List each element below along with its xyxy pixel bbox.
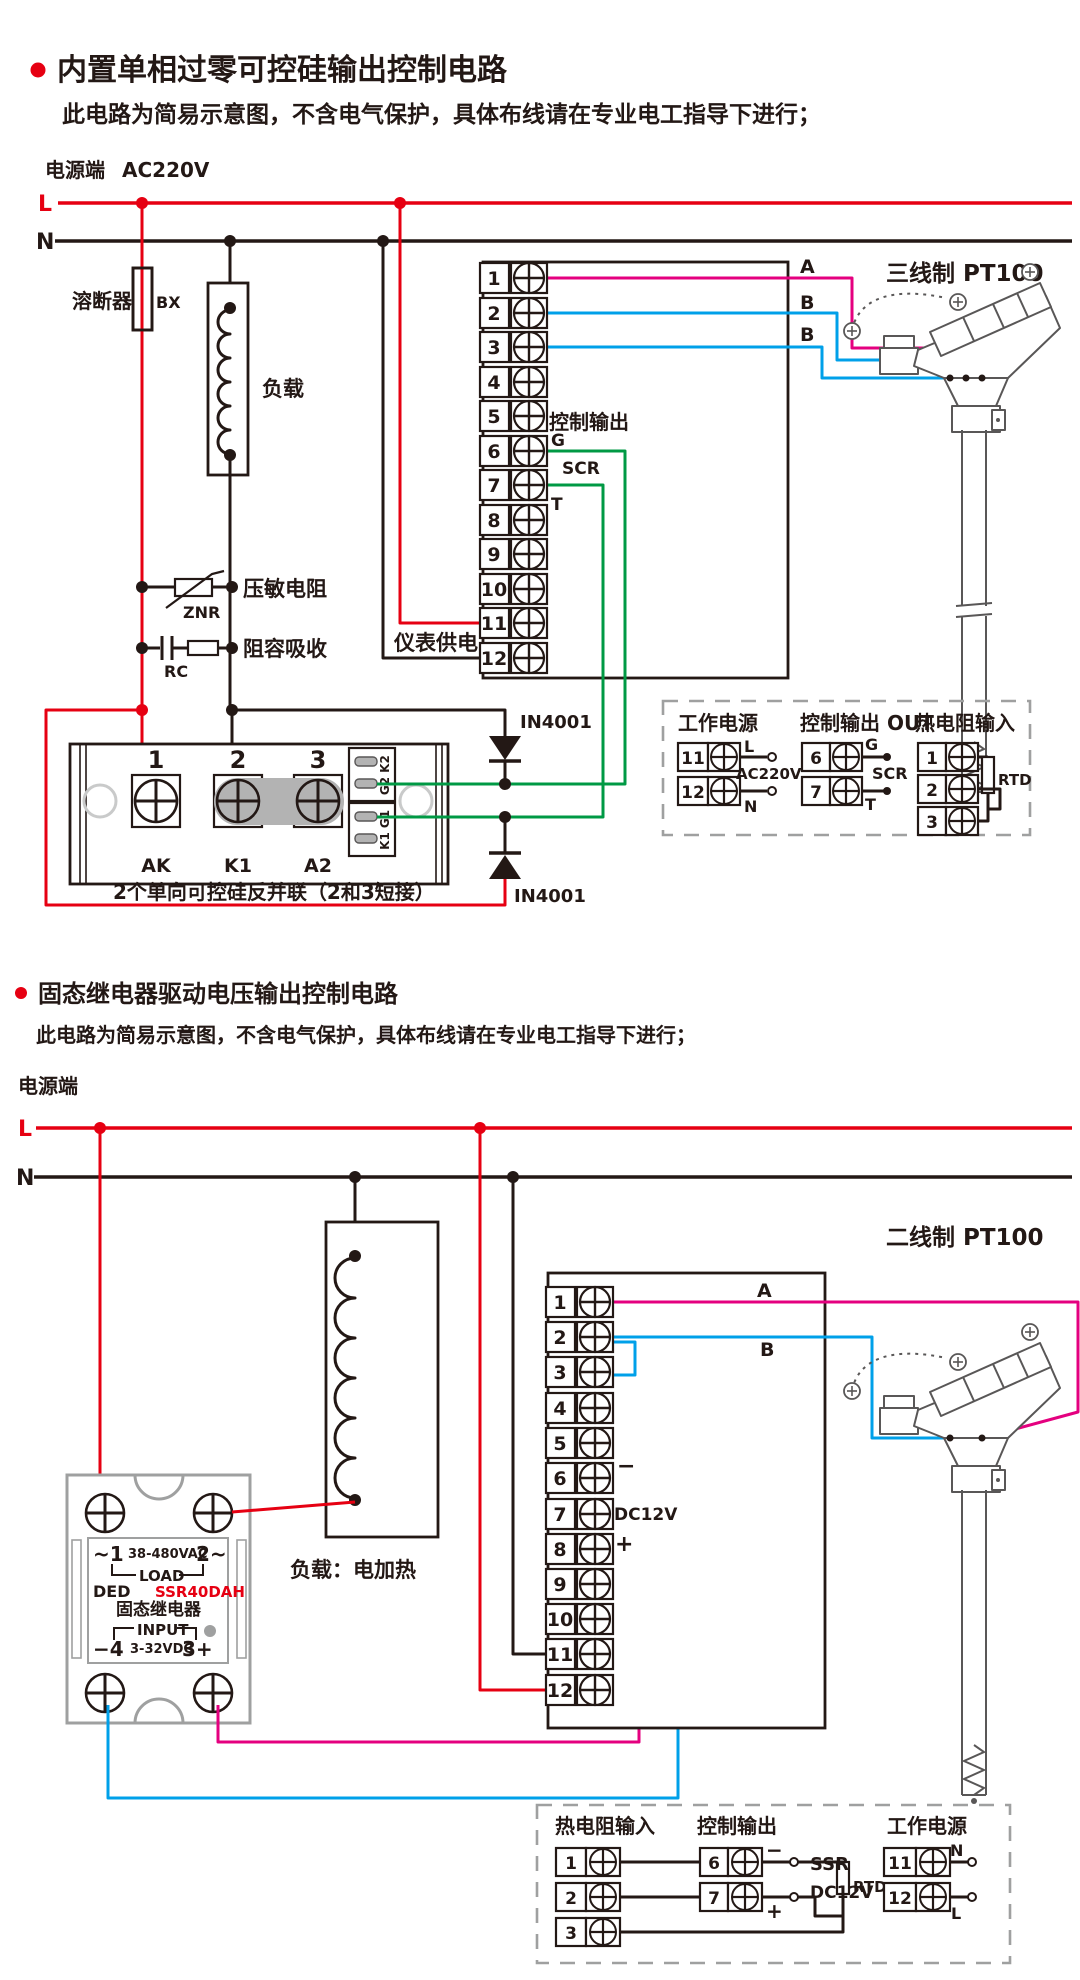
svg-text:7: 7 (487, 475, 500, 497)
scr-label-ak: AK (141, 855, 172, 877)
line-n-label: N (36, 230, 54, 255)
terminal-row: 12 (546, 1675, 613, 1705)
sensor1-label: 三线制 PT100 (886, 260, 1044, 287)
svg-text:热电阻输入: 热电阻输入 (555, 1814, 655, 1838)
ssr-t2: 2~ (196, 1542, 227, 1566)
scr-label-a2: A2 (304, 855, 332, 877)
terminal-row: 12 (480, 643, 547, 673)
svg-text:12: 12 (888, 1889, 912, 1909)
circuit2: 固态继电器驱动电压输出控制电路 此电路为简易示意图，不含电气保护，具体布线请在专… (15, 980, 1078, 1963)
legend2-dc12v: DC12V (810, 1883, 874, 1903)
rc-label: 阻容吸收 (243, 637, 327, 661)
minus-label: − (617, 1454, 635, 1479)
bullet-icon (15, 987, 27, 999)
diode-bottom-label: IN4001 (514, 886, 586, 907)
terminal-row: 2 (480, 298, 547, 328)
svg-text:6: 6 (553, 1468, 566, 1490)
svg-text:8: 8 (553, 1539, 566, 1561)
legend1-n: N (744, 797, 757, 816)
wire-label-a: A (800, 256, 815, 278)
svg-text:12: 12 (681, 783, 705, 803)
meter-supply-label: 仪表供电 (393, 631, 478, 655)
terminal-row: 6 (480, 436, 547, 466)
svg-text:工作电源: 工作电源 (678, 711, 758, 735)
svg-text:11: 11 (481, 613, 507, 635)
svg-text:11: 11 (888, 1854, 912, 1874)
svg-text:2: 2 (487, 303, 500, 325)
legend2-minus: − (766, 1838, 783, 1862)
ssr-ded: DED (93, 1582, 131, 1601)
pin-k1: K1 (378, 832, 392, 850)
svg-text:5: 5 (487, 406, 500, 428)
diagram-canvas: 内置单相过零可控硅输出控制电路 此电路为简易示意图，不含电气保护，具体布线请在专… (0, 0, 1080, 1980)
terminal-row: 3 (546, 1357, 613, 1387)
ssr-p3: 3+ (182, 1637, 213, 1661)
circuit1-subtitle: 此电路为简易示意图，不含电气保护，具体布线请在专业电工指导下进行； (62, 101, 821, 128)
svg-text:3: 3 (553, 1362, 566, 1384)
scr-label: SCR (562, 459, 600, 479)
circuit1: 内置单相过零可控硅输出控制电路 此电路为简易示意图，不含电气保护，具体布线请在专… (31, 53, 1073, 907)
scr-label-k1: K1 (224, 855, 252, 877)
legend2-l: L (951, 1904, 961, 1923)
dc12v-label: DC12V (614, 1505, 678, 1525)
rc-code: RC (164, 662, 188, 681)
terminal-row: 6 (546, 1463, 613, 1493)
svg-text:11: 11 (547, 1644, 573, 1666)
legend2-n: N (950, 1841, 963, 1860)
svg-text:4: 4 (553, 1398, 566, 1420)
svg-text:工作电源: 工作电源 (887, 1814, 967, 1838)
terminal-row: 2 (546, 1322, 613, 1352)
ssr-led (204, 1625, 216, 1637)
scr-terminal-1: 1 (148, 746, 165, 774)
line-l-label: L (18, 1117, 32, 1142)
svg-text:8: 8 (487, 510, 500, 532)
terminal-row: 9 (480, 539, 547, 569)
sensor2-label: 二线制 PT100 (886, 1224, 1044, 1251)
terminal-row: 5 (480, 401, 547, 431)
scr-caption: 2个单向可控硅反并联（2和3短接） (113, 880, 435, 904)
pt100-sensor-2wire: 二线制 PT100 (844, 1224, 1060, 1804)
svg-text:3: 3 (487, 337, 500, 359)
voltage-label: AC220V (122, 158, 210, 182)
power-terminal-label: 电源端 (18, 1074, 78, 1098)
wiring-diagram-page: 内置单相过零可控硅输出控制电路 此电路为简易示意图，不含电气保护，具体布线请在专… (0, 0, 1080, 1980)
svg-text:12: 12 (547, 1680, 573, 1702)
terminal-row: 11 (480, 608, 547, 638)
svg-text:2: 2 (565, 1889, 577, 1909)
legend2-plus: + (766, 1899, 783, 1923)
fuse-label: 溶断器 (72, 289, 133, 313)
svg-text:控制输出: 控制输出 (697, 1814, 777, 1838)
pin-g1: G1 (378, 810, 392, 828)
gate-t-label: T (551, 495, 563, 515)
legend2-power: 工作电源 11 12 N L (884, 1814, 976, 1923)
znr-code: ZNR (183, 603, 220, 622)
svg-text:7: 7 (810, 783, 822, 803)
power-terminal-label: 电源端 (45, 158, 105, 182)
svg-text:1: 1 (487, 268, 500, 290)
legend-1: 工作电源 11 12 L AC220V N 控制输出 OUT 6 7 (663, 701, 1032, 835)
terminal-row: 8 (546, 1534, 613, 1564)
svg-text:6: 6 (810, 749, 822, 769)
bullet-icon (31, 63, 46, 78)
terminal-row: 1 (480, 263, 547, 293)
svg-text:11: 11 (681, 749, 705, 769)
ssr-model: SSR40DAH (155, 1583, 245, 1601)
scr-terminal-3: 3 (310, 746, 327, 774)
scr-terminal-2: 2 (230, 746, 247, 774)
circuit1-title: 内置单相过零可控硅输出控制电路 (57, 53, 508, 88)
terminal-row: 10 (480, 574, 547, 604)
wire-label-b2: B (800, 324, 814, 346)
svg-text:9: 9 (553, 1574, 566, 1596)
wire-label-a: A (757, 1280, 772, 1302)
wire-label-b1: B (800, 292, 814, 314)
svg-text:7: 7 (553, 1504, 566, 1526)
terminal-row: 10 (546, 1604, 613, 1634)
terminal-row: 7 (480, 470, 547, 500)
terminal-row: 11 (546, 1639, 613, 1669)
legend1-l: L (744, 737, 754, 756)
scr-module: 1 2 3 AK K1 A2 K2 G2 G1 K1 (70, 744, 448, 884)
fuse-code: BX (156, 293, 181, 312)
legend1-t: T (865, 795, 876, 814)
svg-text:10: 10 (481, 579, 507, 601)
svg-text:1: 1 (565, 1854, 577, 1874)
pin-g2: G2 (378, 777, 392, 795)
svg-text:2: 2 (553, 1327, 566, 1349)
terminal-row: 9 (546, 1569, 613, 1599)
legend1-rtd-code: RTD (998, 771, 1032, 789)
wire-label-b: B (760, 1339, 774, 1361)
terminal-row: 4 (480, 367, 547, 397)
fuse: 溶断器 BX (72, 203, 181, 790)
svg-text:1: 1 (553, 1292, 566, 1314)
load-label: 负载：电加热 (290, 1558, 416, 1582)
ssr-t1: ~1 (93, 1542, 124, 1566)
terminal-row: 1 (546, 1287, 613, 1317)
circuit2-title: 固态继电器驱动电压输出控制电路 (38, 980, 399, 1008)
svg-text:9: 9 (487, 544, 500, 566)
diode-top-label: IN4001 (520, 712, 592, 733)
ssr-module: ~1 38-480VAC 2~ LOAD DED SSR40DAH 固态继电器 … (67, 1475, 250, 1723)
legend1-g: G (865, 735, 878, 754)
svg-text:3: 3 (926, 813, 938, 833)
legend-2: 热电阻输入 1 2 3 RTD 控制输出 6 7 (537, 1805, 1010, 1963)
load-label: 负载 (262, 377, 304, 401)
legend2-output: 控制输出 6 7 − SSR DC12V + (697, 1814, 874, 1923)
line-l-label: L (38, 192, 52, 217)
gate-g-label: G (551, 431, 565, 451)
legend1-power: 工作电源 11 12 L AC220V N (678, 711, 802, 816)
line-n-label: N (16, 1166, 34, 1191)
ssr-m4: −4 (93, 1637, 124, 1661)
svg-text:6: 6 (487, 441, 500, 463)
terminal-row: 8 (480, 505, 547, 535)
circuit2-subtitle: 此电路为简易示意图，不含电气保护，具体布线请在专业电工指导下进行； (36, 1023, 696, 1047)
svg-text:2: 2 (926, 781, 938, 801)
terminal-row: 3 (480, 332, 547, 362)
svg-text:热电阻输入: 热电阻输入 (915, 711, 1015, 735)
svg-text:5: 5 (553, 1433, 566, 1455)
legend2-ssr: SSR (810, 1854, 849, 1875)
terminal-row: 7 (546, 1499, 613, 1529)
svg-text:10: 10 (547, 1609, 573, 1631)
plus-label: + (615, 1532, 633, 1557)
legend1-rtd: 热电阻输入 1 2 3 RTD (915, 711, 1032, 835)
svg-text:3: 3 (565, 1924, 577, 1944)
load2: 负载：电加热 (290, 1222, 438, 1582)
legend1-scr: SCR (872, 764, 908, 783)
terminal-row: 5 (546, 1428, 613, 1458)
ssr-name: 固态继电器 (116, 1599, 202, 1620)
svg-text:1: 1 (926, 749, 938, 769)
znr-label: 压敏电阻 (243, 577, 327, 601)
legend1-ac220v: AC220V (736, 765, 802, 783)
pin-k2: K2 (378, 755, 392, 773)
svg-text:7: 7 (708, 1889, 720, 1909)
svg-text:4: 4 (487, 372, 500, 394)
neutral-to-t11-wire (513, 1177, 548, 1654)
load-to-diode-wire (232, 710, 505, 736)
terminal-row: 4 (546, 1393, 613, 1423)
supply-neutral-wire (383, 241, 483, 658)
supply-live-wire (400, 203, 483, 623)
svg-text:12: 12 (481, 648, 507, 670)
svg-text:6: 6 (708, 1854, 720, 1874)
